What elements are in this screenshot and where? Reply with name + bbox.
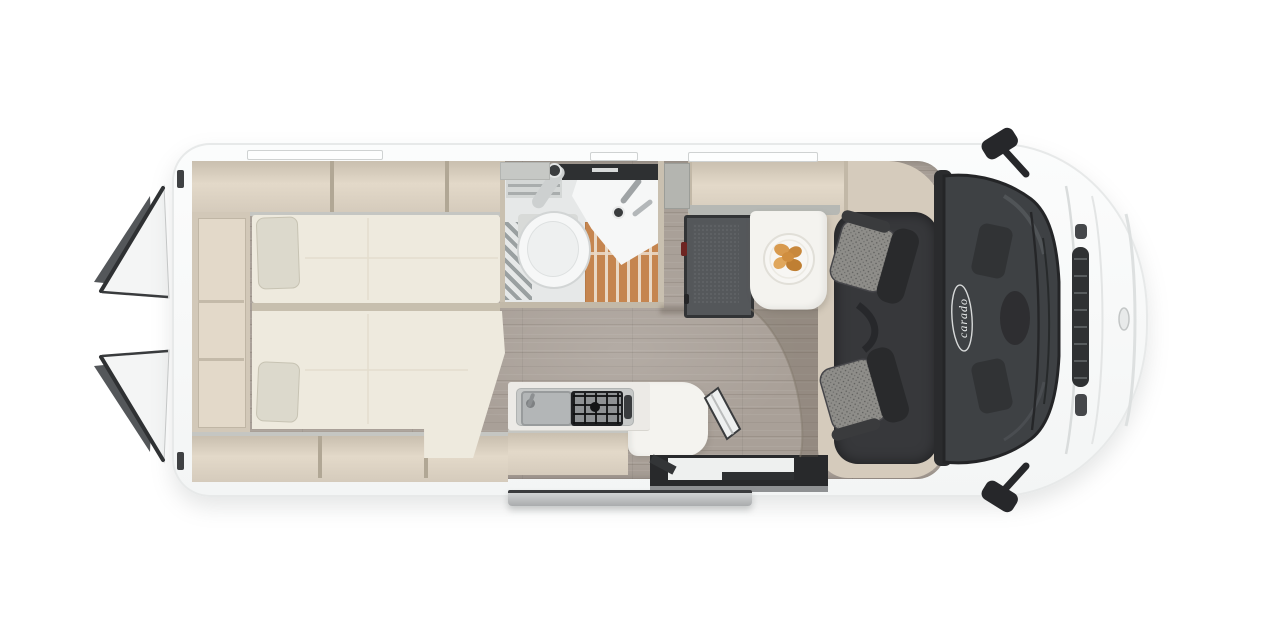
seat-gap-shadow — [858, 305, 875, 350]
swivel-seat-front — [822, 209, 922, 307]
swivel-seat-rear — [812, 345, 912, 443]
hood-crease — [1092, 196, 1103, 444]
entry-floor-dark-area — [751, 309, 818, 457]
brand-logo: carado — [951, 288, 975, 348]
detail-overlay — [0, 0, 1280, 640]
front-badge — [1119, 308, 1129, 330]
boarding-step-icon — [705, 388, 740, 439]
grille-icon — [1072, 247, 1089, 387]
side-mirror-top-icon — [979, 125, 1026, 174]
breakfast-plate — [764, 234, 814, 284]
side-mirror-bottom-icon — [979, 466, 1026, 515]
campervan-floorplan: carado — [0, 0, 1280, 640]
bed-seams — [305, 218, 498, 424]
